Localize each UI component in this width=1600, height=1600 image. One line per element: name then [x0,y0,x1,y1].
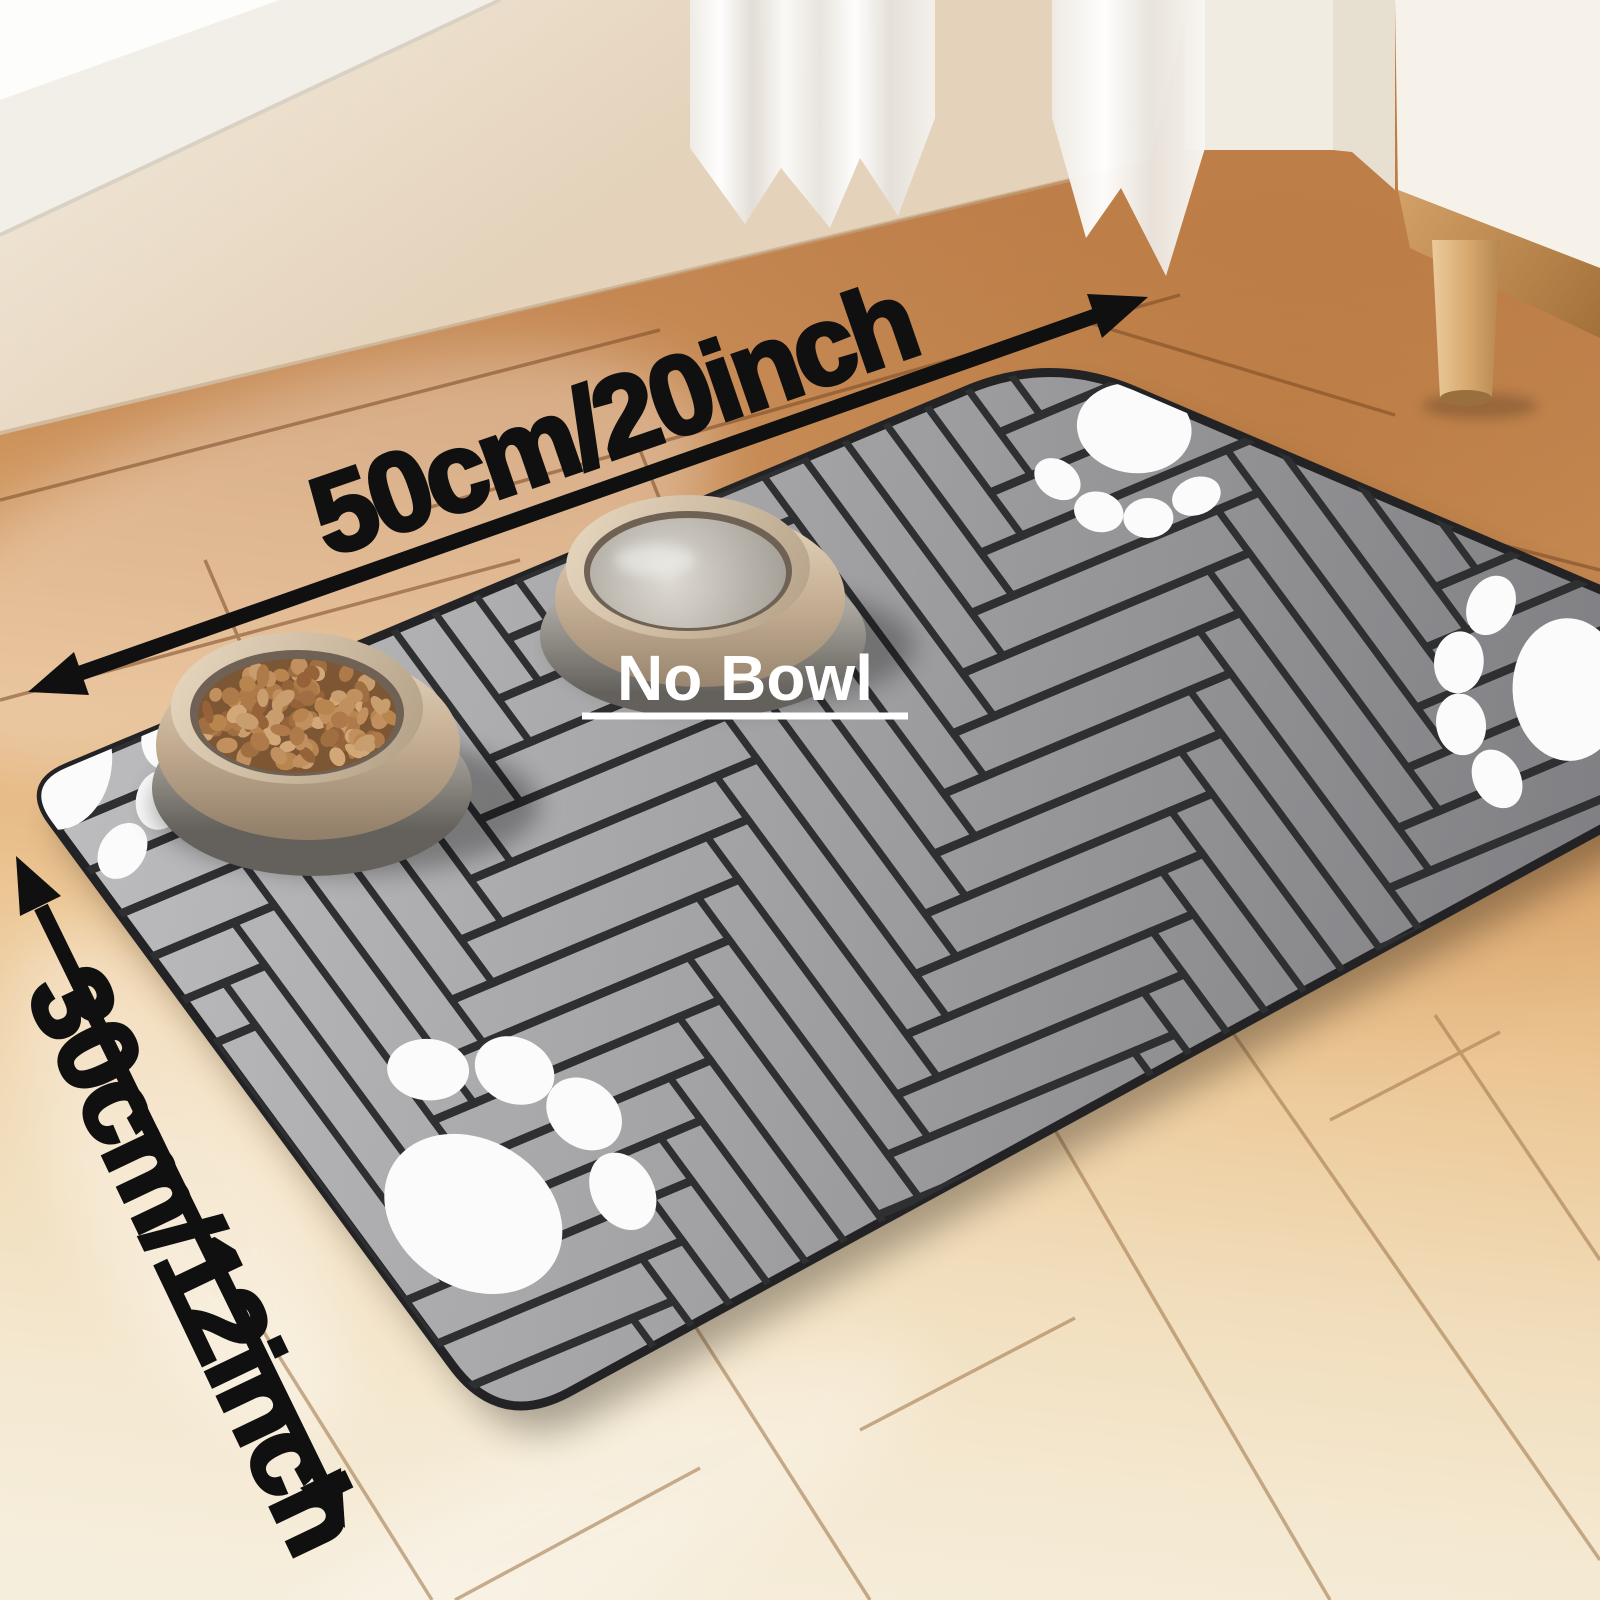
water-highlight [615,544,695,576]
water-surface [590,518,786,628]
cabinet-left-panel [1185,0,1333,150]
product-photo-pet-feeding-mat: 50cm/20inch 30cm/12inch No Bowl [0,0,1600,1600]
leg-foot [1440,390,1492,406]
curtain-panel-left [690,0,935,228]
no-bowl-annotation: No Bowl [582,642,908,716]
scene-canvas: 50cm/20inch 30cm/12inch No Bowl [0,0,1600,1600]
cabinet-wood-leg [1432,240,1500,398]
no-bowl-label: No Bowl [617,642,873,714]
